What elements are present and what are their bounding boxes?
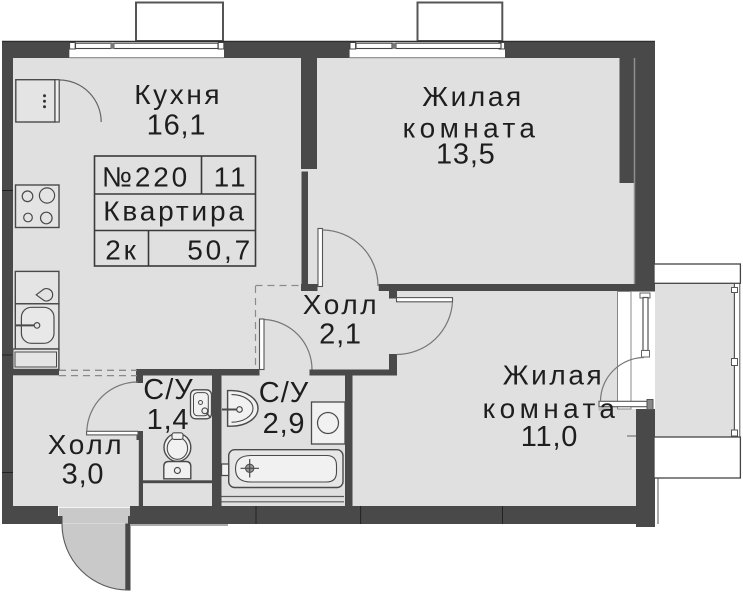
svg-text:11: 11 [214,162,249,193]
svg-text:2,1: 2,1 [319,319,362,351]
svg-text:Жилая: Жилая [422,81,524,112]
svg-text:Холл: Холл [48,429,124,460]
svg-text:Холл: Холл [303,289,379,320]
svg-text:№220: №220 [102,162,190,193]
svg-text:2к: 2к [105,235,138,266]
svg-text:11,0: 11,0 [521,421,579,453]
svg-text:Квартира: Квартира [103,196,246,227]
svg-text:Кухня: Кухня [134,79,222,110]
svg-text:С/У: С/У [259,377,309,409]
svg-text:3,0: 3,0 [62,459,105,491]
svg-text:16,1: 16,1 [147,110,207,142]
svg-text:1,4: 1,4 [147,404,190,436]
svg-text:Жилая: Жилая [503,359,605,390]
svg-text:50,7: 50,7 [187,235,253,266]
svg-text:2,9: 2,9 [263,408,306,440]
svg-text:13,5: 13,5 [436,139,496,171]
svg-text:С/У: С/У [143,374,193,406]
svg-text:комната: комната [483,393,620,424]
